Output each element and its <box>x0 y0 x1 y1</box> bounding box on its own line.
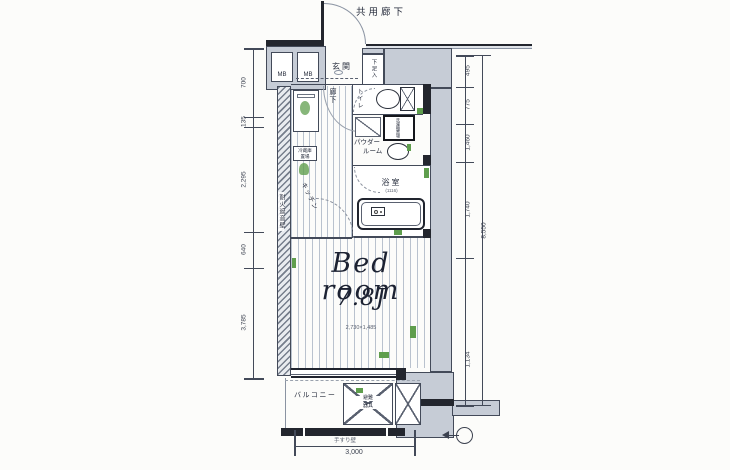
dim-right-total-tick-top <box>473 55 491 56</box>
dim-left-tick-5 <box>244 378 264 380</box>
dim-right-total-tick-bottom <box>473 405 491 406</box>
bathtub-inner <box>361 202 421 226</box>
escape-hatch-labels: 避難 器具 <box>344 396 392 409</box>
escape-hatch-label-line1: 避難 <box>357 396 379 401</box>
balcony-label: バルコニー <box>294 392 336 399</box>
fridge-box: 冷蔵庫 置場 <box>293 146 317 161</box>
escape-hatch-box: 避難 器具 <box>343 383 393 425</box>
balcony-left-edge <box>285 378 286 430</box>
dim-left-3: 640 <box>242 232 251 268</box>
shoe-cabinet: 下足入 <box>362 54 384 88</box>
fire-wall <box>277 86 291 376</box>
dim-right-2: 1,460 <box>466 125 475 161</box>
meter-box-1-label: MB <box>272 72 292 78</box>
meter-box-1: MB <box>271 52 293 82</box>
bath-right-wall <box>423 229 431 238</box>
bedroom-green-mark-1 <box>410 326 416 338</box>
dim-bottom-tick-right <box>414 430 416 456</box>
toilet-tank <box>400 87 415 111</box>
washer-label: 洗濯機置場 <box>396 118 400 138</box>
powder-mirror <box>355 117 381 137</box>
entrance-fixture <box>334 70 343 75</box>
dim-left-2: 2,295 <box>242 162 251 198</box>
washer-box: 洗濯機置場 <box>383 115 415 141</box>
bedroom-dim-note: 2,730×1,485 <box>316 326 406 332</box>
escape-hatch-label-line2: 器具 <box>357 404 379 409</box>
dim-bottom-tick-left <box>294 430 296 456</box>
north-arrow-head <box>442 431 449 439</box>
powder-sink <box>387 143 409 160</box>
dim-left-4: 3,785 <box>242 305 251 341</box>
bathroom-label: 浴室 <box>353 179 430 187</box>
fridge-label-1: 冷蔵庫 <box>294 149 316 154</box>
fridge-label-2: 置場 <box>294 155 316 160</box>
dim-bottom-line <box>294 446 415 447</box>
dim-left-0: 700 <box>242 65 251 101</box>
toilet-right-wall <box>423 84 431 114</box>
dim-right-1: 775 <box>466 87 475 123</box>
dim-right-0: 495 <box>466 53 475 89</box>
dim-right-total: 8,550 <box>482 213 491 249</box>
top-right-wall <box>384 48 452 88</box>
balcony-top-line <box>285 380 420 381</box>
counter-top-line <box>297 94 315 98</box>
dim-left-line <box>253 48 254 378</box>
powder-room-label-line1: パウダー <box>354 140 382 147</box>
dim-bottom-label: 3,000 <box>324 449 384 456</box>
balcony-partition-box <box>395 383 421 425</box>
balcony-note: 手すり壁 <box>334 439 356 445</box>
entrance-step-line <box>296 78 358 79</box>
bedroom-green-mark-3 <box>292 258 296 268</box>
plant-mark <box>299 163 309 175</box>
bedroom-window <box>291 368 397 378</box>
powder-room-label-line2: ルーム <box>363 149 382 156</box>
bedroom-green-mark-2 <box>379 352 389 358</box>
dim-right-tick-4 <box>456 258 474 259</box>
dim-right-4: 1,134 <box>466 342 475 378</box>
toilet-green-mark <box>417 108 423 114</box>
entrance-label: 玄関 <box>324 63 360 71</box>
powder-room-label: パウダー ルーム <box>354 140 382 155</box>
balcony-rail-slit-2 <box>386 428 388 436</box>
dim-right-tick-5 <box>456 405 474 407</box>
window-corner-block <box>396 368 406 380</box>
neighbor-wall-stub <box>452 400 500 416</box>
dim-left-1: 135 <box>242 104 251 140</box>
dim-right-3: 1,740 <box>466 192 475 228</box>
dim-left-tick-0 <box>244 48 264 50</box>
bath-green-mark-1 <box>424 168 429 178</box>
fire-wall-label: 耐火遮音壁 <box>278 192 284 231</box>
floor-plan: 共用廊下 MB MB 玄関 下足入 耐火遮音壁 廊下 冷蔵庫 置場 キッチン <box>0 0 730 470</box>
bathroom-size-label: (1116) <box>353 189 430 194</box>
bedroom-size-label: 7.8J <box>291 287 431 310</box>
powder-right-wall <box>423 155 431 165</box>
balcony-green-mark <box>356 388 363 393</box>
dim-left-tick-4 <box>244 268 264 269</box>
balcony-rail-slit-1 <box>303 428 305 436</box>
bath-green-mark-2 <box>394 230 402 235</box>
shoe-cabinet-label: 下足入 <box>370 59 376 79</box>
dim-right-tick-3 <box>456 162 474 163</box>
right-wall-column <box>430 88 452 372</box>
sink-basin <box>300 101 310 115</box>
bath-control-knobs <box>374 210 378 214</box>
bottom-right-dark-bar <box>420 399 454 406</box>
bath-bottom-wall <box>352 236 431 238</box>
common-corridor-label: 共用廊下 <box>356 8 426 18</box>
powder-faucet <box>407 144 411 151</box>
toilet-bowl <box>376 89 400 109</box>
